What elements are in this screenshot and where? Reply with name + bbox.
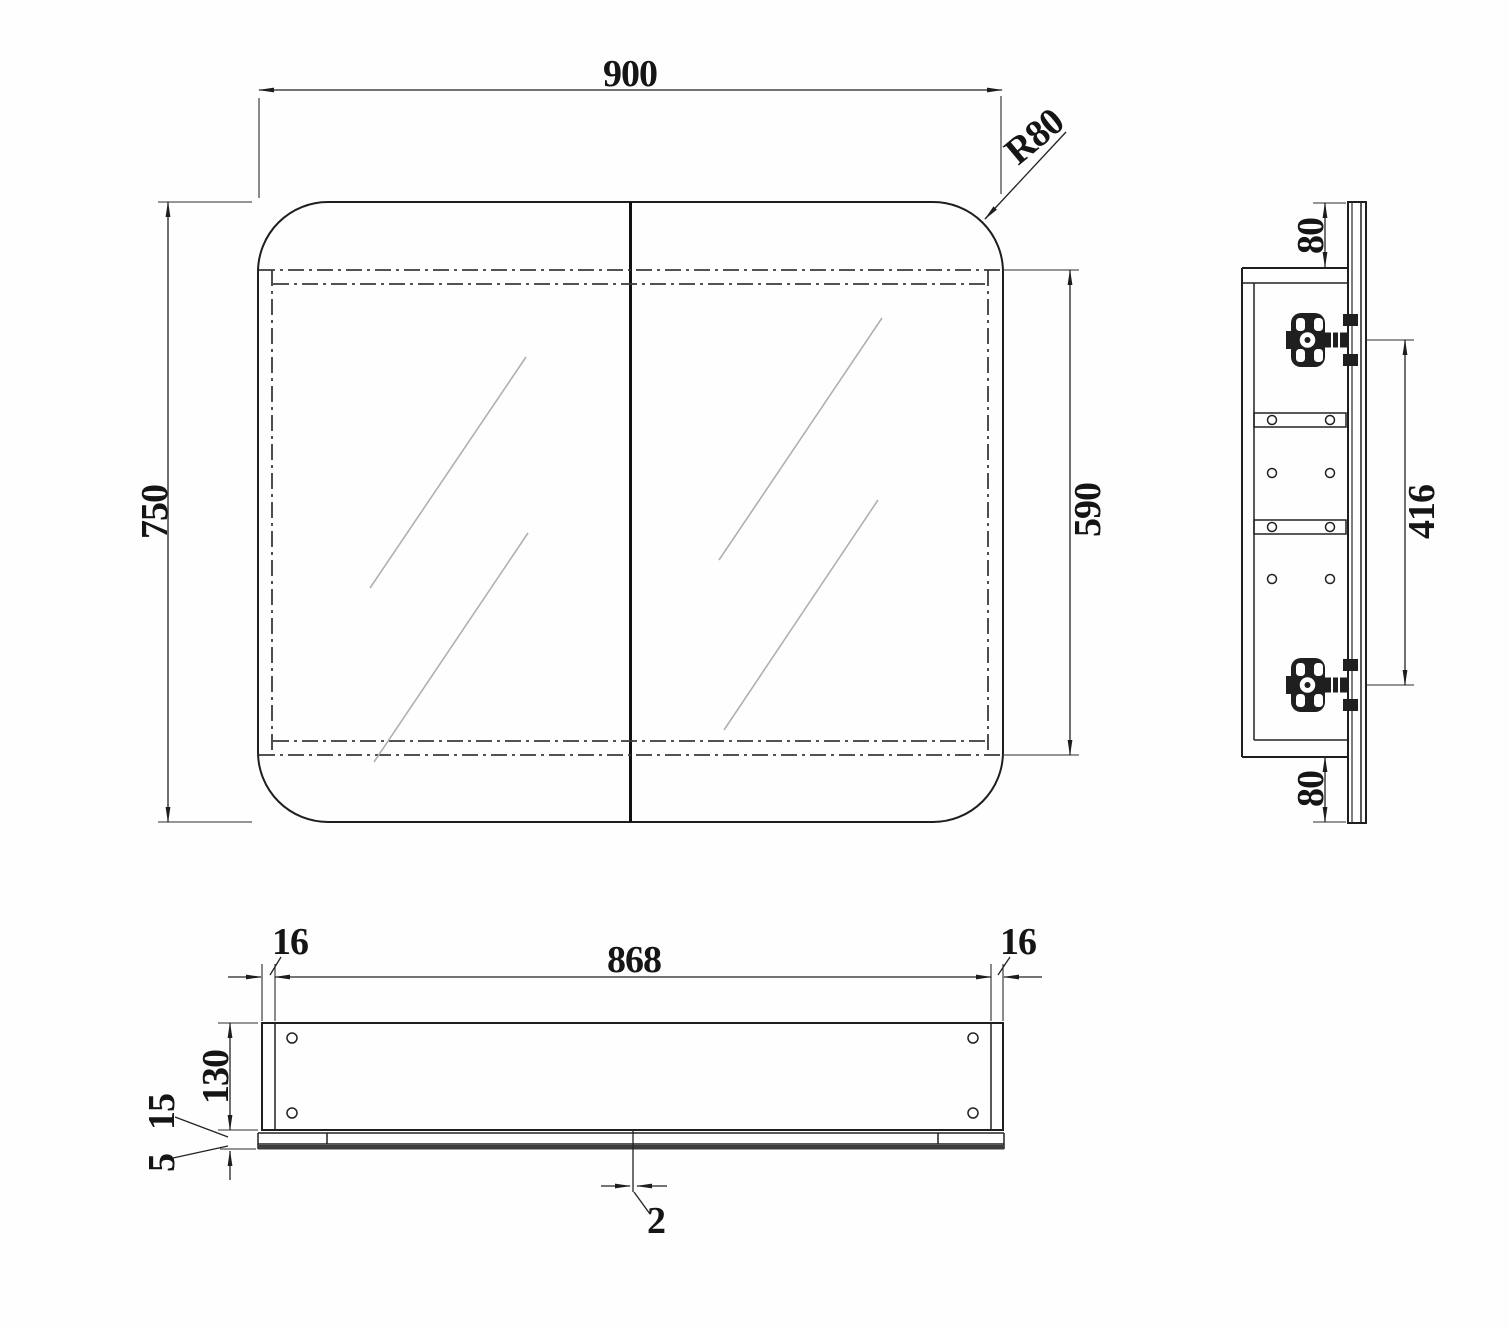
dim-bottom-overhang: 80 xyxy=(1290,757,1346,822)
left-panel-label: 16 xyxy=(272,921,308,963)
bottom-hinge xyxy=(1286,658,1358,712)
mirror-glass-band xyxy=(258,1145,1004,1150)
front-width-label: 900 xyxy=(603,53,657,95)
door-thickness-label: 15 xyxy=(141,1094,183,1130)
mounting-holes xyxy=(287,1033,978,1118)
right-panel-label: 16 xyxy=(1000,921,1036,963)
bottom-view: 868 16 16 130 15 5 xyxy=(141,921,1042,1242)
front-height-label: 750 xyxy=(134,485,176,539)
door-edge-strip xyxy=(258,1133,1004,1150)
dim-corner-radius: R80 xyxy=(985,101,1072,219)
depth-label: 130 xyxy=(195,1050,237,1104)
carcass-plan-outline xyxy=(262,1023,1003,1130)
top-hinge xyxy=(1286,313,1358,367)
shelf-pin-holes xyxy=(1268,416,1335,584)
dim-carcass-height: 590 xyxy=(1002,270,1109,755)
mirror-thickness-label: 5 xyxy=(141,1154,183,1172)
dim-top-overhang: 80 xyxy=(1290,203,1346,267)
front-view: 900 750 590 R80 xyxy=(134,53,1109,822)
bottom-overhang-label: 80 xyxy=(1290,771,1332,807)
dim-depth: 130 xyxy=(195,1023,258,1130)
side-view: 80 416 80 xyxy=(1242,202,1443,823)
corner-radius-label: R80 xyxy=(997,101,1072,173)
side-door-panel xyxy=(1348,202,1366,823)
technical-drawing-page: 900 750 590 R80 xyxy=(0,0,1508,1328)
dim-hinge-spacing: 416 xyxy=(1366,340,1443,685)
dim-front-width: 900 xyxy=(259,53,1002,198)
dim-front-height: 750 xyxy=(134,202,252,822)
mirror-cabinet-drawing: 900 750 590 R80 xyxy=(0,0,1508,1328)
top-overhang-label: 80 xyxy=(1290,218,1332,254)
dim-inner-width: 868 16 16 xyxy=(228,921,1042,1021)
carcass-height-label: 590 xyxy=(1067,483,1109,537)
inner-width-label: 868 xyxy=(607,939,661,981)
hinge-spacing-label: 416 xyxy=(1401,485,1443,539)
mirror-reflection-lines xyxy=(370,318,882,762)
door-gap-label: 2 xyxy=(647,1200,665,1242)
dim-mirror-thickness: 5 xyxy=(141,1146,256,1180)
